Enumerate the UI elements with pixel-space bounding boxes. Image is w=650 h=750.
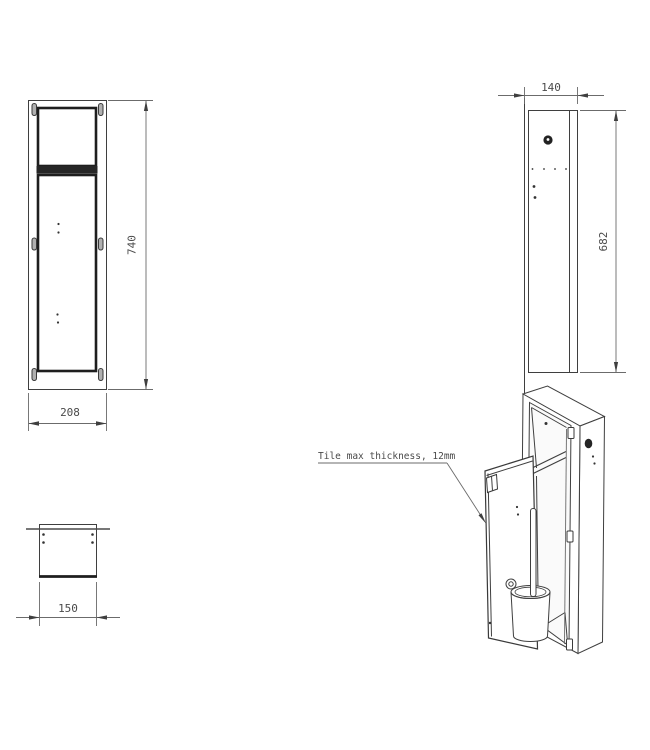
tile-thickness-label: Tile max thickness, 12mm	[318, 451, 456, 462]
mounting-slot	[32, 369, 37, 381]
annotation-arrow	[479, 513, 487, 523]
front-width-dimension: 208	[29, 393, 107, 431]
side-body	[529, 111, 578, 373]
front-service-door	[38, 175, 96, 371]
mounting-slot	[99, 369, 104, 381]
side-view: 140 682	[498, 81, 626, 393]
hinge-mark	[567, 531, 573, 542]
brush-cup	[511, 592, 550, 642]
front-height-dimension: 740	[108, 101, 153, 390]
mounting-slot	[99, 104, 104, 116]
mounting-slot	[99, 238, 104, 250]
hinge-mark	[567, 639, 573, 650]
front-height-dim-label: 740	[126, 235, 139, 255]
annotation-leader	[318, 463, 482, 517]
mounting-slot	[32, 238, 37, 250]
front-upper-opening	[38, 108, 96, 166]
brush-handle	[531, 509, 537, 597]
front-width-dim-label: 208	[60, 406, 80, 419]
side-height-dim-label: 682	[597, 232, 610, 252]
technical-drawing: 740 208 140	[0, 0, 650, 750]
top-width-dimension: 150	[16, 582, 120, 626]
top-body	[40, 525, 97, 578]
front-view: 740 208	[29, 101, 154, 432]
hinge-mark	[568, 428, 574, 439]
isometric-view: Tile max thickness, 12mm	[318, 386, 605, 654]
side-depth-dimension: 140	[498, 81, 604, 104]
front-divider	[37, 166, 98, 174]
mounting-slot	[32, 104, 37, 116]
side-height-dimension: 682	[580, 111, 626, 373]
side-depth-dim-label: 140	[541, 81, 561, 94]
top-view: 150	[16, 525, 120, 627]
iso-interior-hole	[545, 422, 548, 425]
tile-thickness-annotation: Tile max thickness, 12mm	[318, 451, 486, 524]
top-width-dim-label: 150	[58, 602, 78, 615]
iso-right-panel	[578, 417, 605, 654]
